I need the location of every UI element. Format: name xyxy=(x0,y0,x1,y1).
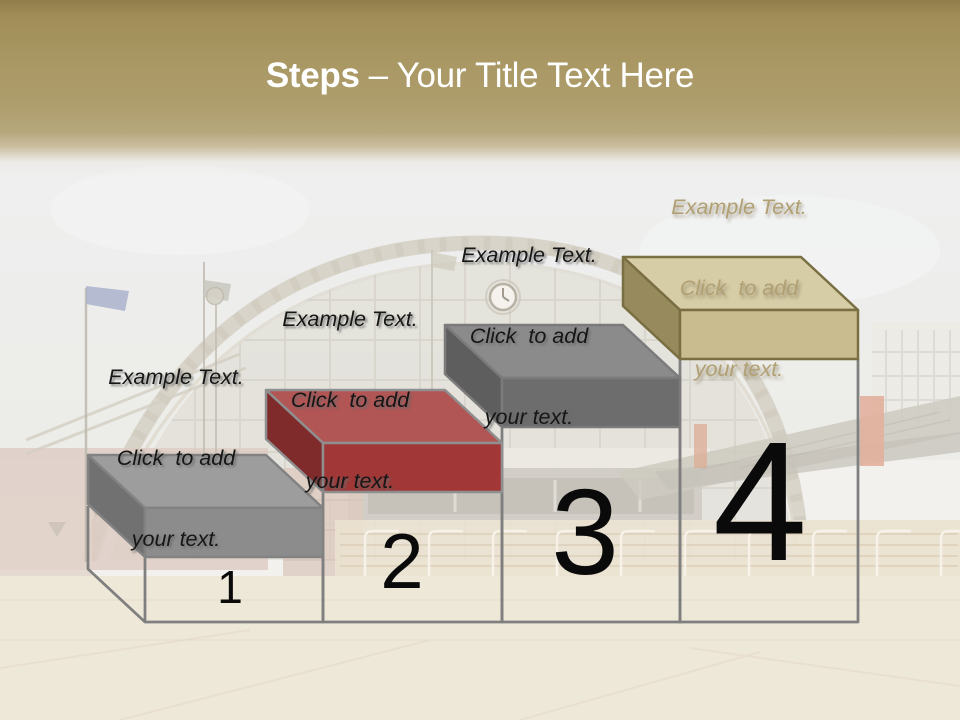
step-4-label[interactable]: Example Text. Click to add your text. xyxy=(671,140,806,437)
label-line: your text. xyxy=(282,468,417,495)
label-line: Example Text. xyxy=(671,194,806,221)
title-rest: – Your Title Text Here xyxy=(369,56,694,95)
label-line: your text. xyxy=(461,404,596,431)
label-line: Example Text. xyxy=(282,306,417,333)
label-line: your text. xyxy=(108,526,243,553)
step-2-label[interactable]: Example Text. Click to add your text. xyxy=(282,252,417,549)
label-line: Click to add xyxy=(461,323,596,350)
label-line: Click to add xyxy=(282,387,417,414)
step-1-label[interactable]: Example Text. Click to add your text. xyxy=(108,310,243,607)
slide: Steps– Your Title Text Here xyxy=(0,0,960,720)
label-line: Click to add xyxy=(108,445,243,472)
label-line: your text. xyxy=(671,356,806,383)
label-line: Example Text. xyxy=(108,364,243,391)
step-3-label[interactable]: Example Text. Click to add your text. xyxy=(461,188,596,485)
title-emphasis: Steps xyxy=(266,56,360,95)
page-title[interactable]: Steps– Your Title Text Here xyxy=(0,57,960,95)
label-line: Click to add xyxy=(671,275,806,302)
label-line: Example Text. xyxy=(461,242,596,269)
